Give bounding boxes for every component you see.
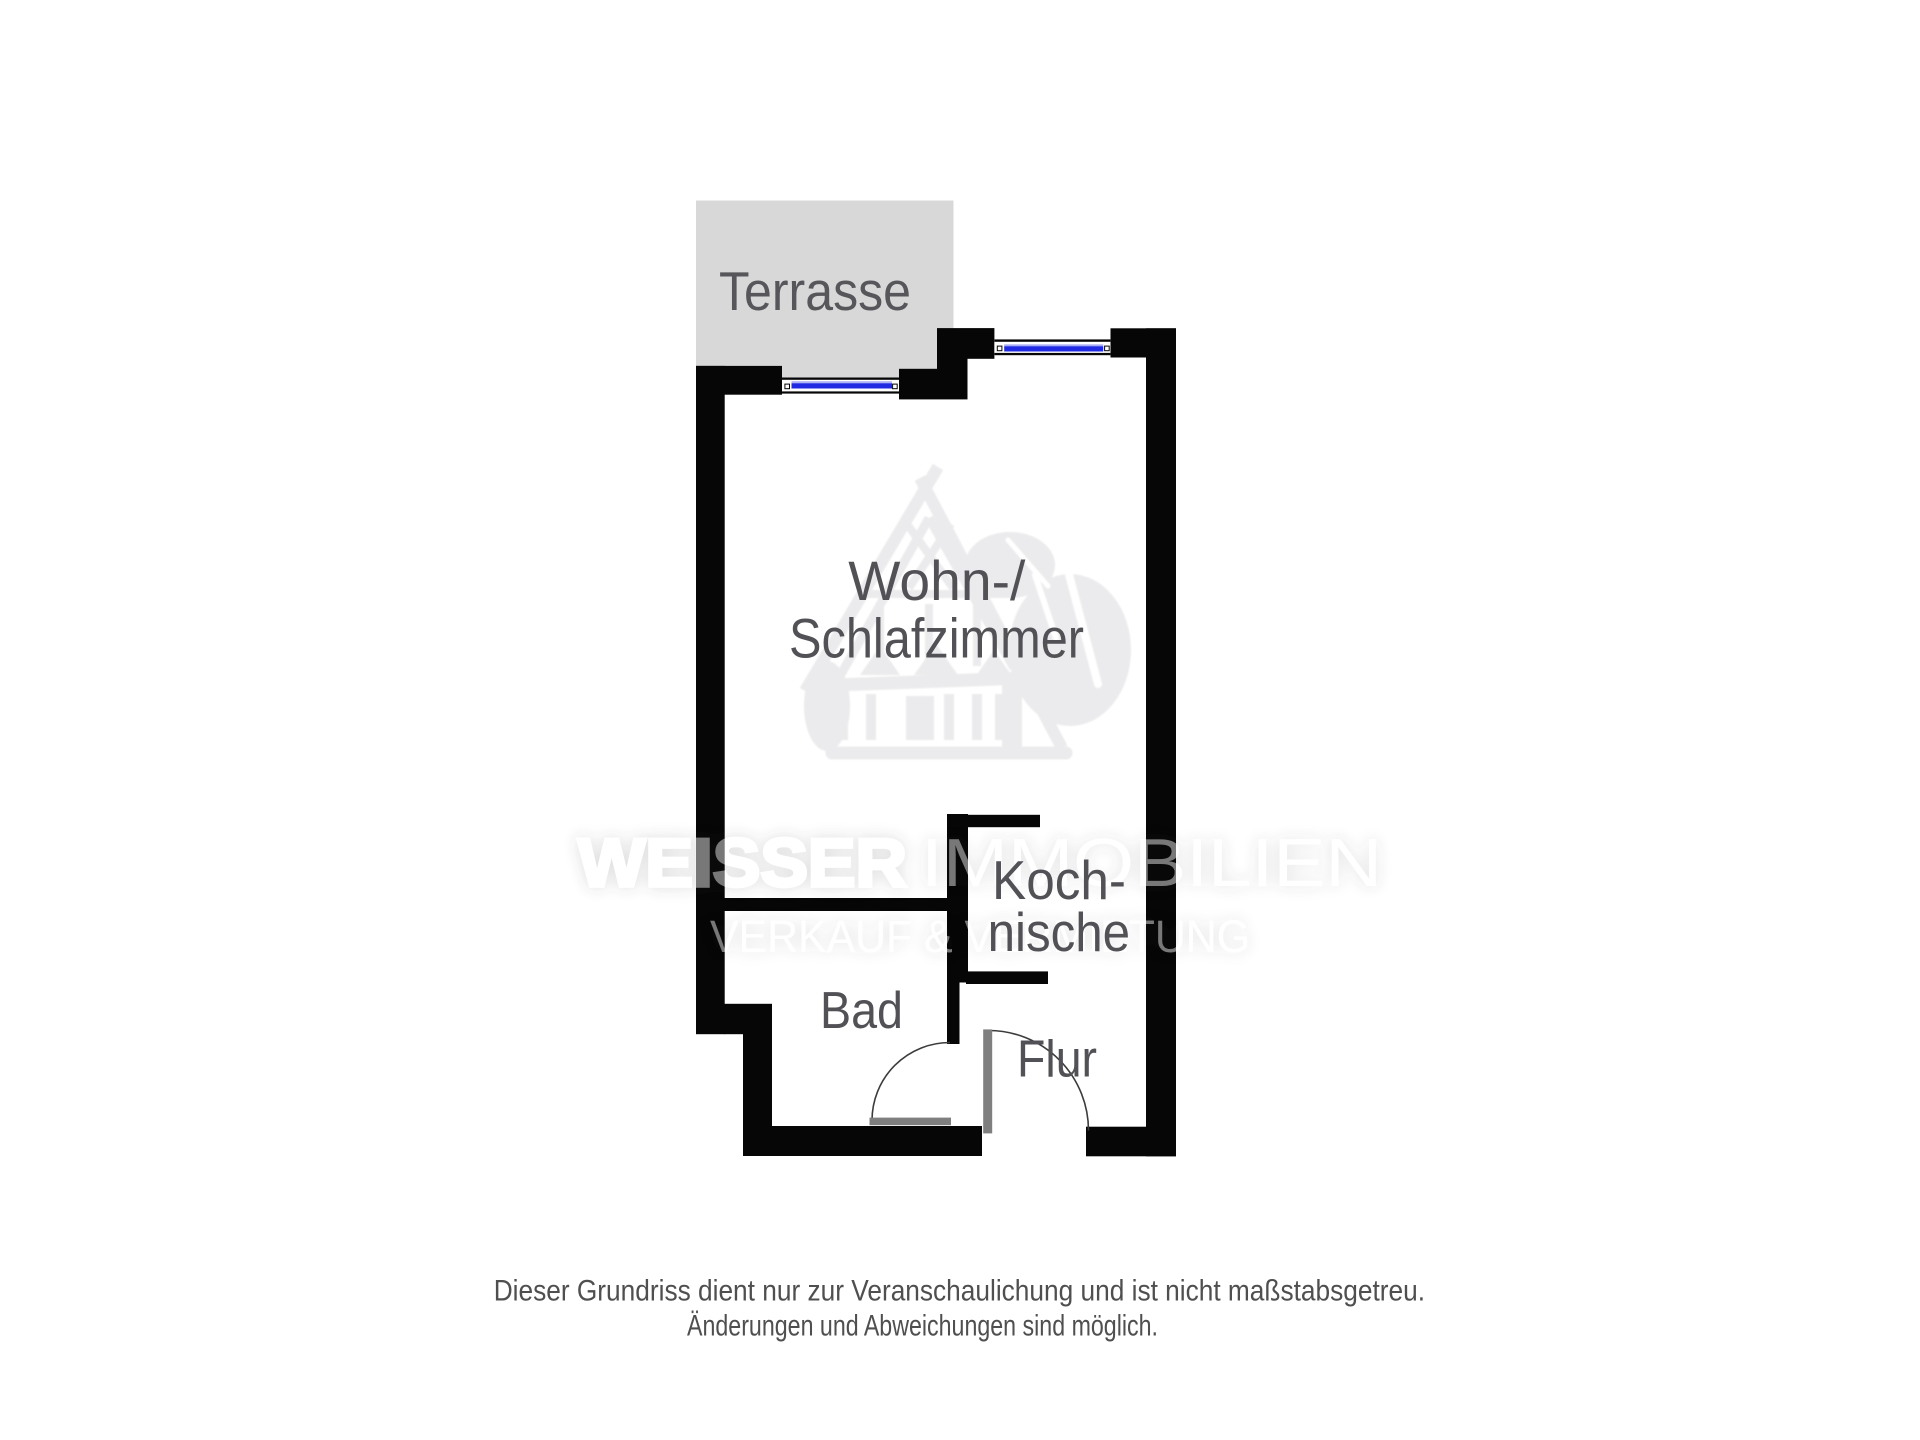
svg-text:Schlafzimmer: Schlafzimmer xyxy=(789,607,1084,670)
svg-text:WEISSER: WEISSER xyxy=(578,825,907,901)
svg-text:Wohn-/: Wohn-/ xyxy=(848,549,1025,612)
svg-text:VERKAUF & VERMIETUNG: VERKAUF & VERMIETUNG xyxy=(710,911,1250,962)
svg-text:Bad: Bad xyxy=(820,982,903,1040)
svg-text:Flur: Flur xyxy=(1017,1031,1097,1089)
svg-text:IMMOBILIEN: IMMOBILIEN xyxy=(921,825,1382,901)
svg-text:Änderungen und Abweichungen si: Änderungen und Abweichungen sind möglich… xyxy=(687,1310,1158,1343)
svg-text:nische: nische xyxy=(988,901,1131,963)
svg-text:Dieser Grundriss dient nur zur: Dieser Grundriss dient nur zur Veranscha… xyxy=(494,1274,1425,1307)
svg-text:Terrasse: Terrasse xyxy=(719,260,911,322)
